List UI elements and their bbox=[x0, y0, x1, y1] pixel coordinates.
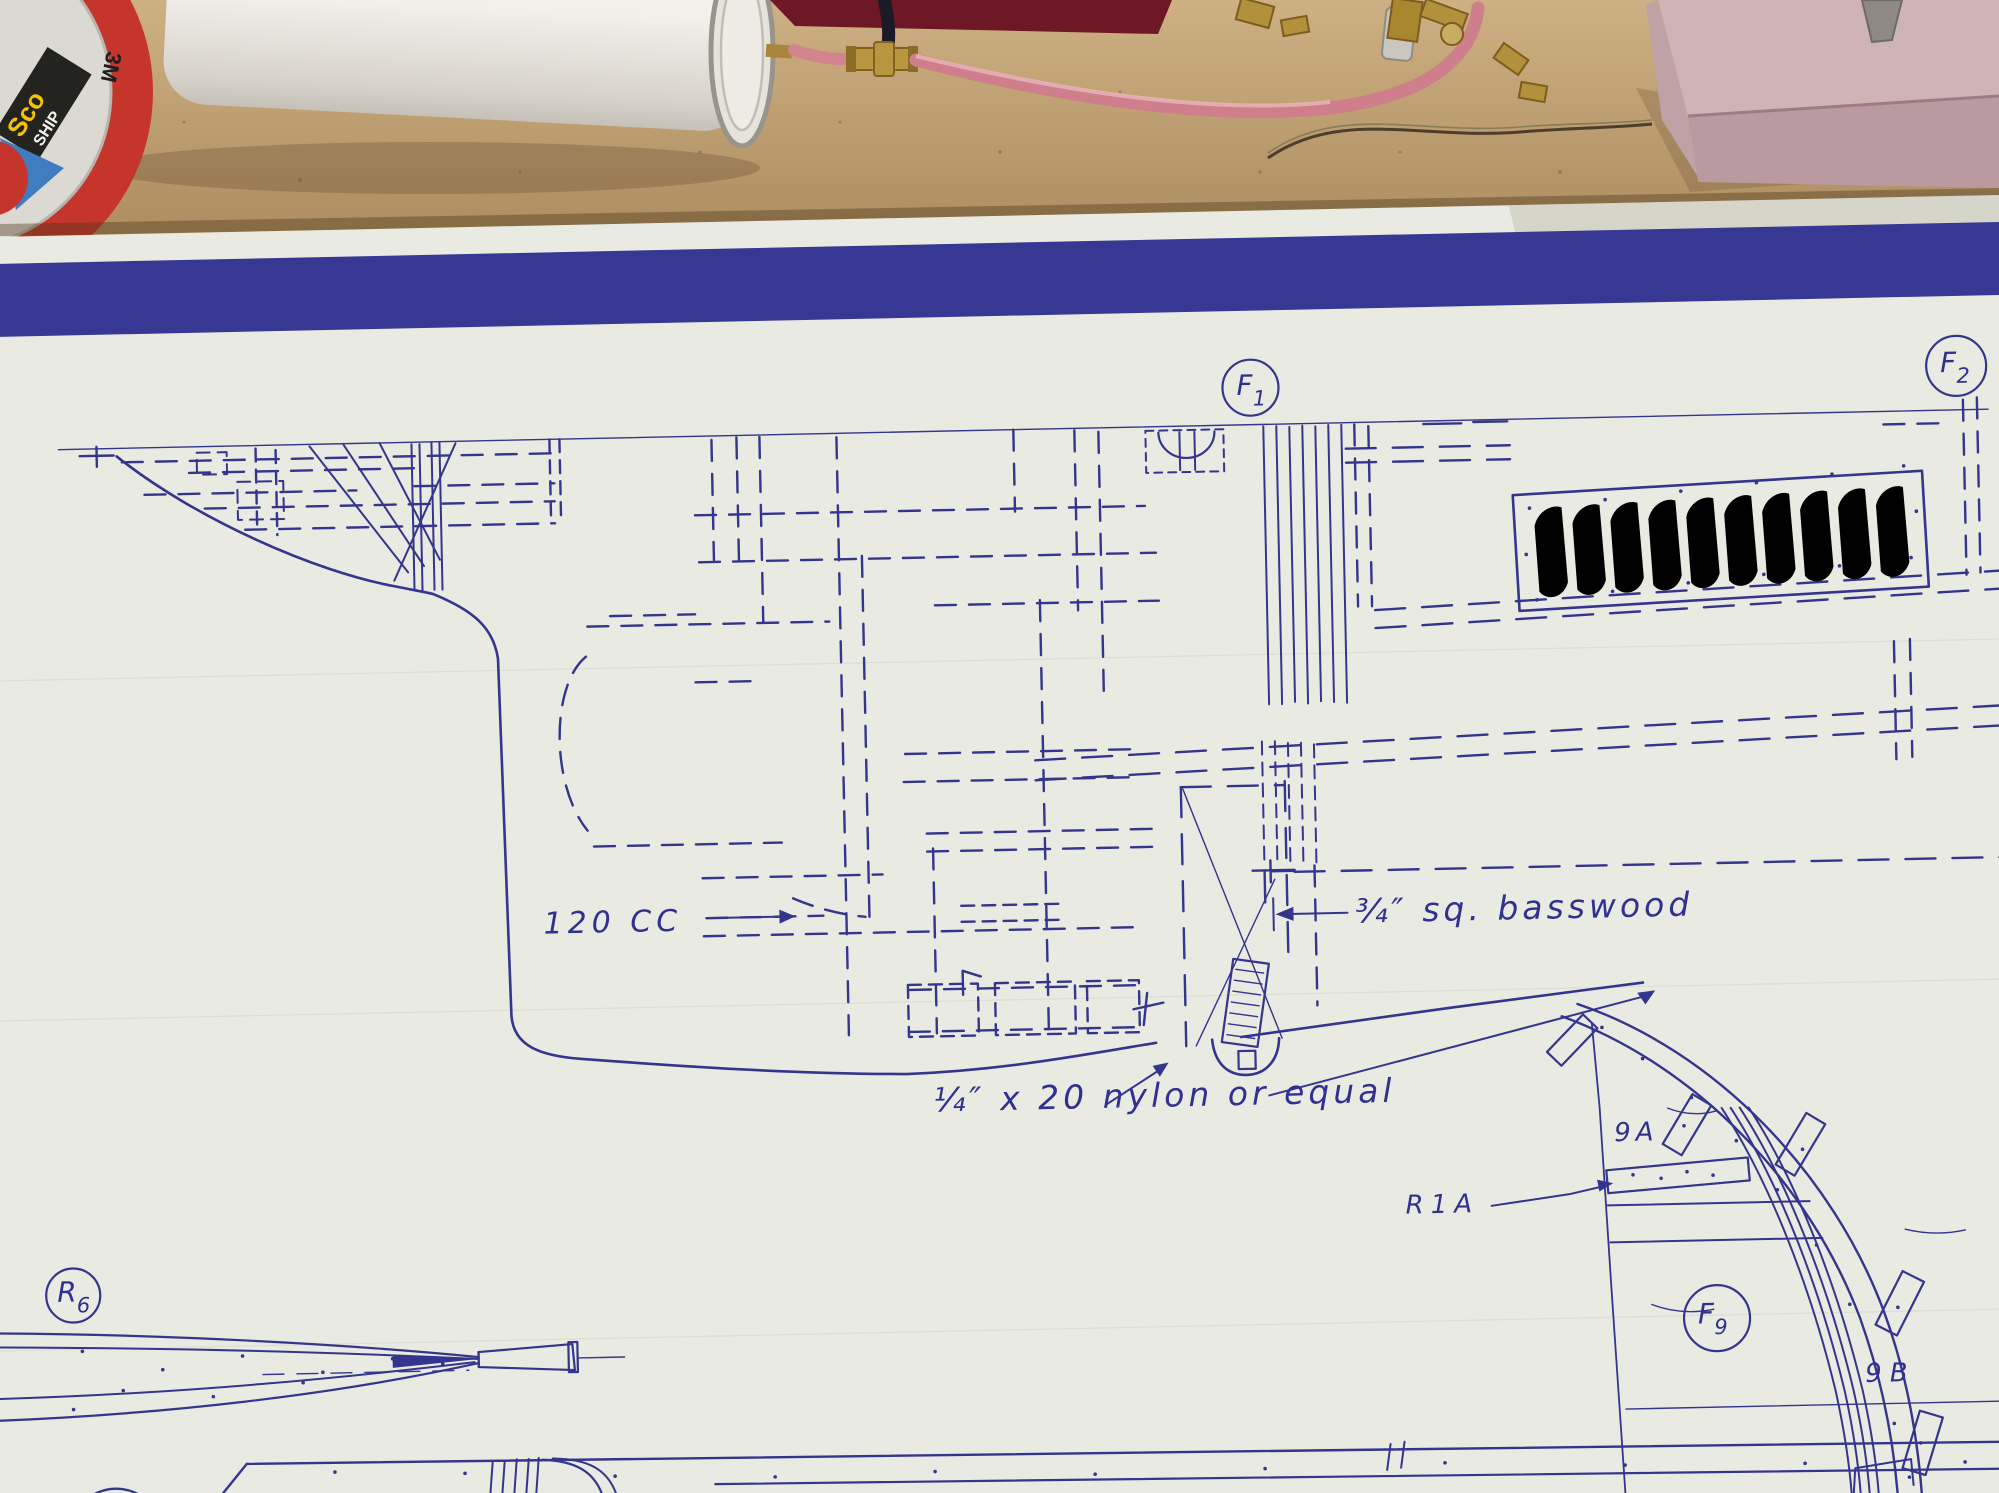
r6-letter: R bbox=[57, 1275, 77, 1308]
f9-letter: F bbox=[1698, 1297, 1716, 1330]
f2-number: 2 bbox=[1956, 364, 1970, 388]
photo-of-blueprint-on-workbench: Sco SHIP 3M bbox=[0, 0, 1999, 1493]
brass-t-fitting bbox=[846, 42, 918, 76]
f1-number: 1 bbox=[1253, 386, 1267, 410]
tank-capacity-label: 120 CC bbox=[543, 904, 682, 942]
r1a-label: R1A bbox=[1405, 1189, 1479, 1221]
part-9b-label: 9B bbox=[1865, 1358, 1916, 1389]
basswood-arrow bbox=[1289, 913, 1347, 914]
f1-letter: F bbox=[1236, 369, 1254, 402]
blueprint-sheet: 120 CC ¾″ sq. basswood ¼″ x 20 nylon or … bbox=[0, 193, 1999, 1493]
basswood-label: ¾″ sq. basswood bbox=[1355, 885, 1694, 931]
f9-number: 9 bbox=[1714, 1315, 1728, 1339]
foam-block bbox=[1636, 0, 1999, 192]
tank-end-cap-inner bbox=[721, 0, 763, 130]
basswood-extent-bar bbox=[1273, 898, 1274, 930]
tank-shadow bbox=[100, 142, 760, 194]
tank-capacity-arrow bbox=[709, 917, 777, 918]
part-9a-label: 9A bbox=[1614, 1117, 1659, 1148]
f2-letter: F bbox=[1940, 346, 1958, 379]
r6-number: 6 bbox=[77, 1293, 91, 1317]
